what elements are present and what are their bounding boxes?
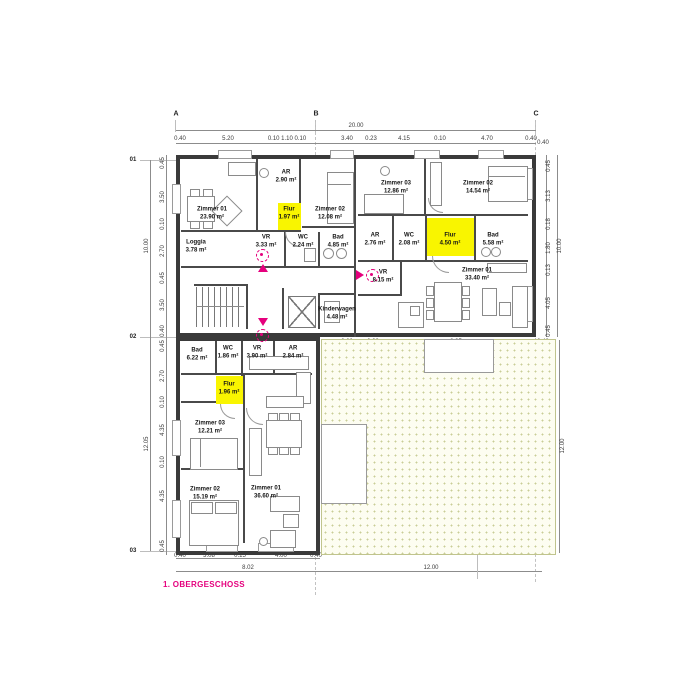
window	[172, 420, 181, 456]
room-label: Flur1.96 m²	[219, 382, 240, 397]
staircase-midline	[196, 306, 244, 307]
room-label: VR3.33 m²	[256, 235, 277, 250]
grid-row-02: 02	[130, 334, 137, 340]
furniture-dining-table	[266, 420, 302, 448]
dimension-label: 0.45	[160, 340, 166, 352]
dimension-label: 0.10	[160, 456, 166, 468]
entrance-arrow-icon	[356, 270, 364, 280]
wall	[318, 293, 356, 295]
room-label: Kinderwagen4.48 m²	[318, 307, 356, 322]
furniture-chair	[426, 286, 434, 296]
dimension-label: 3.50	[160, 299, 166, 311]
wall	[358, 294, 402, 296]
room-label: Zimmer 0215.19 m²	[190, 487, 220, 502]
furniture-pillow	[215, 502, 237, 514]
furniture-sink	[323, 248, 334, 259]
room-label: Zimmer 0133.40 m²	[462, 268, 492, 283]
wall	[392, 216, 394, 262]
wall	[194, 284, 248, 286]
dimension-label: 20.00	[348, 123, 363, 129]
furniture-pillow	[191, 502, 213, 514]
dimension-label: 0.40	[525, 136, 537, 142]
dimension-label: 12.00	[423, 565, 438, 571]
window	[414, 150, 440, 159]
apartment-number-badge	[256, 249, 269, 262]
room-label: Bad4.85 m²	[328, 235, 349, 250]
furniture-wardrobe	[249, 428, 262, 476]
wall	[181, 373, 312, 375]
dimension-label: 0.45	[546, 325, 552, 337]
furniture-chair	[462, 298, 470, 308]
wall	[181, 230, 301, 232]
furniture-cabinet	[228, 162, 256, 176]
furniture-bed-line	[489, 176, 525, 177]
room-label: Zimmer 0136.60 m²	[251, 486, 281, 501]
room-label: Zimmer 0312.86 m²	[381, 181, 411, 196]
dimension-label: 10.00	[557, 238, 563, 253]
dimension-label: 0.45	[160, 540, 166, 552]
dimension-label: 0.23	[365, 136, 377, 142]
furniture-chair	[190, 189, 200, 197]
room-label: Loggia3.78 m²	[186, 240, 207, 255]
dimension-label: 4.05	[546, 297, 552, 309]
room-label: Flur4.50 m²	[440, 233, 461, 248]
dimension-label: 0.45	[160, 272, 166, 284]
dimension-label: 0.10 1.10 0.10	[268, 136, 306, 142]
wall	[318, 232, 320, 268]
dimension-label: 0.10	[160, 218, 166, 230]
dimension-label: 0.40	[160, 325, 166, 337]
dimension-label: 4.15	[398, 136, 410, 142]
furniture-chair	[380, 166, 390, 176]
dimension-label: 0.10	[160, 396, 166, 408]
wall	[474, 216, 476, 262]
furniture-chair	[279, 447, 289, 455]
furniture-chair	[203, 221, 213, 229]
room-label: VR8.15 m²	[373, 270, 394, 285]
dimension-label: 0.10	[434, 136, 446, 142]
dimension-line	[176, 558, 320, 559]
entrance-arrow-icon	[258, 264, 268, 272]
dimension-label: 0.13	[546, 264, 552, 276]
dimension-line	[150, 160, 151, 551]
wall	[282, 288, 284, 329]
dimension-label: 0.40	[174, 136, 186, 142]
wall	[400, 262, 402, 296]
dimension-line	[176, 571, 542, 572]
wall	[424, 159, 426, 216]
room-label: AR2.84 m²	[283, 346, 304, 361]
room-label: Zimmer 0214.54 m²	[463, 181, 493, 196]
dimension-label: 3.50	[160, 191, 166, 203]
furniture-chair	[462, 286, 470, 296]
furniture-sofa	[512, 286, 528, 328]
furniture-sink	[481, 247, 491, 257]
furniture-chair	[426, 310, 434, 320]
furniture-toilet	[304, 248, 316, 262]
terrace	[321, 424, 367, 504]
furniture-chair	[290, 447, 300, 455]
grid-col-c: C	[533, 111, 538, 118]
dimension-label: 3.40	[341, 136, 353, 142]
dimension-label: 2.70	[160, 245, 166, 257]
furniture-chair	[268, 413, 278, 421]
room-label: Flur1.97 m²	[279, 207, 300, 222]
dimension-line	[166, 155, 167, 555]
room-label: Bad5.58 m²	[483, 233, 504, 248]
room-label: Bad6.22 m²	[187, 348, 208, 363]
dimension-label: 0.18	[546, 218, 552, 230]
entrance-arrow-icon	[258, 318, 268, 326]
furniture-bed	[364, 194, 404, 214]
dimension-label: 1.80	[546, 242, 552, 254]
furniture-bed	[190, 438, 238, 470]
furniture-lamp	[259, 168, 269, 178]
furniture-chair	[268, 447, 278, 455]
wall	[243, 373, 245, 543]
furniture-chair	[203, 189, 213, 197]
furniture-chair	[290, 413, 300, 421]
window	[478, 150, 504, 159]
furniture-wardrobe	[430, 162, 442, 206]
window	[172, 184, 181, 214]
wall	[302, 226, 354, 228]
window	[218, 150, 252, 159]
furniture-sink	[491, 247, 501, 257]
storey-title: 1. OBERGESCHOSS	[163, 580, 245, 589]
dimension-label: 4.35	[160, 490, 166, 502]
dimension-label: 2.70	[160, 370, 166, 382]
furniture-chair	[426, 298, 434, 308]
furniture-chair	[190, 221, 200, 229]
terrace	[424, 339, 494, 373]
furniture-lamp	[259, 537, 268, 546]
grid-col-b: B	[313, 111, 318, 118]
grid-tick	[140, 160, 176, 161]
dimension-line	[176, 143, 536, 144]
furniture-chair	[279, 413, 289, 421]
dimension-line	[176, 130, 536, 131]
dimension-label: 12.05	[144, 436, 150, 451]
furniture-kitchen-island	[266, 396, 304, 408]
window	[330, 150, 354, 159]
furniture-armchair	[283, 514, 299, 528]
furniture-bed	[488, 166, 528, 202]
dimension-label: 0.45	[160, 157, 166, 169]
staircase	[196, 287, 244, 327]
furniture-sink	[336, 248, 347, 259]
window	[172, 500, 181, 538]
wall	[358, 214, 528, 216]
wall	[246, 284, 248, 329]
dimension-label: 4.70	[481, 136, 493, 142]
room-label: VR3.90 m²	[247, 346, 268, 361]
apartment-number-badge	[256, 329, 269, 342]
dimension-label: 5.20	[222, 136, 234, 142]
elevator	[288, 296, 316, 328]
room-label: WC2.24 m²	[293, 235, 314, 250]
room-label: AR2.90 m²	[276, 170, 297, 185]
room-label: AR2.76 m²	[365, 233, 386, 248]
furniture-sofa	[482, 288, 497, 316]
dimension-label: 12.00	[560, 438, 566, 453]
furniture-sink	[410, 306, 420, 316]
dimension-label: 0.45	[546, 160, 552, 172]
room-label: WC1.86 m²	[218, 346, 239, 361]
room-label: Zimmer 0123.90 m²	[197, 207, 227, 222]
furniture-sideboard	[487, 263, 527, 273]
grid-tick	[140, 551, 176, 552]
dimension-label: 10.00	[144, 238, 150, 253]
dimension-label: 4.35	[160, 424, 166, 436]
wall	[256, 159, 258, 232]
furniture-chair	[462, 310, 470, 320]
grid-row-01: 01	[130, 157, 137, 163]
grid-col-a: A	[173, 111, 178, 118]
furniture-coffee-table	[499, 302, 511, 316]
room-label: WC2.08 m²	[399, 233, 420, 248]
room-label: Zimmer 0312.21 m²	[195, 421, 225, 436]
furniture-bed-line	[328, 184, 351, 185]
grid-tick	[140, 337, 176, 338]
furniture-sofa	[270, 530, 296, 548]
dimension-label: 8.02	[242, 565, 254, 571]
dimension-label: 0.40	[537, 140, 549, 146]
room-label: Zimmer 0212.08 m²	[315, 207, 345, 222]
furniture-bed-line	[200, 439, 201, 467]
furniture-dining-table	[434, 282, 462, 322]
grid-row-03: 03	[130, 548, 137, 554]
floor-plan-sheet: A B C 01 02 03 20.00 0.40 5.20 0.10 1.10…	[0, 0, 700, 700]
dimension-label: 3.13	[546, 190, 552, 202]
